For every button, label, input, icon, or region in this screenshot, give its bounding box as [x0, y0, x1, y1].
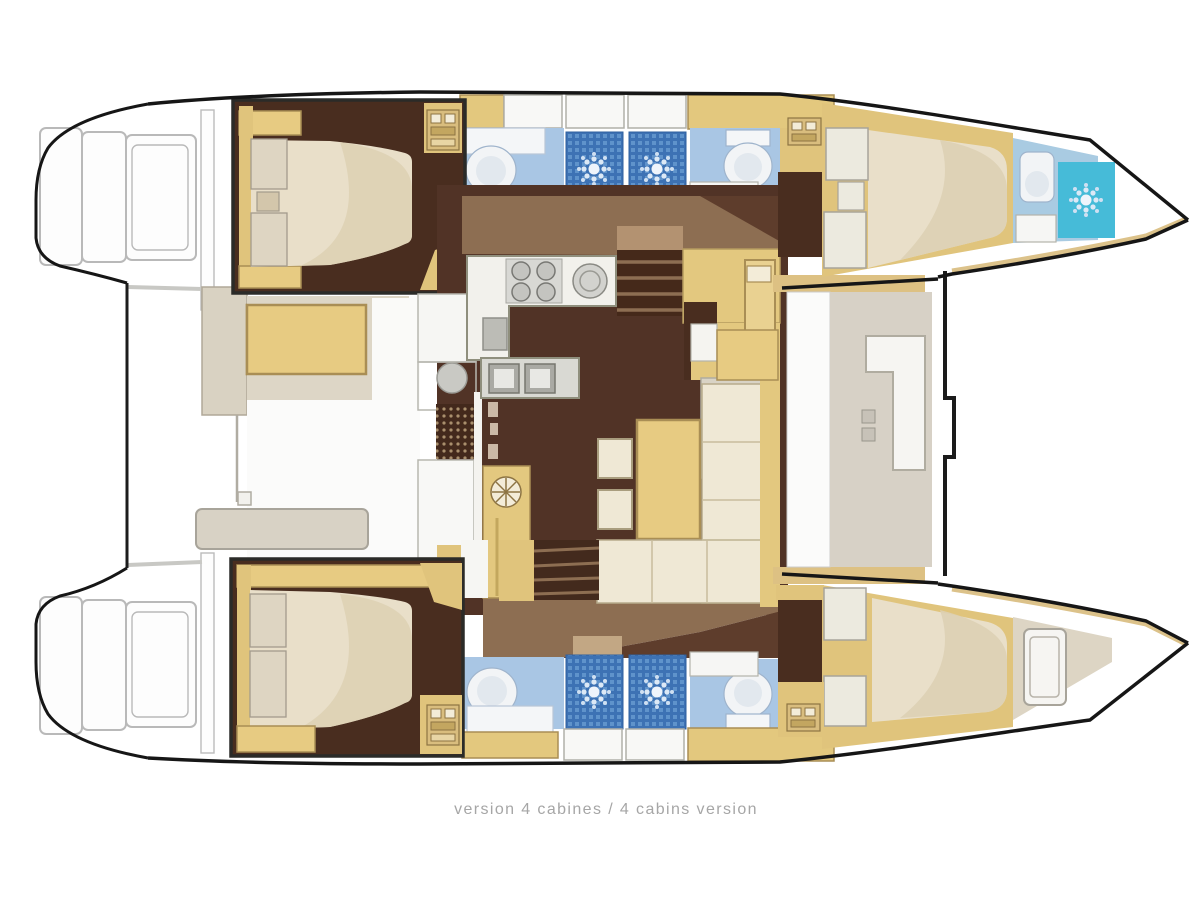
svg-text:version 4 cabines / 4 cabins v: version 4 cabines / 4 cabins version [454, 801, 758, 818]
